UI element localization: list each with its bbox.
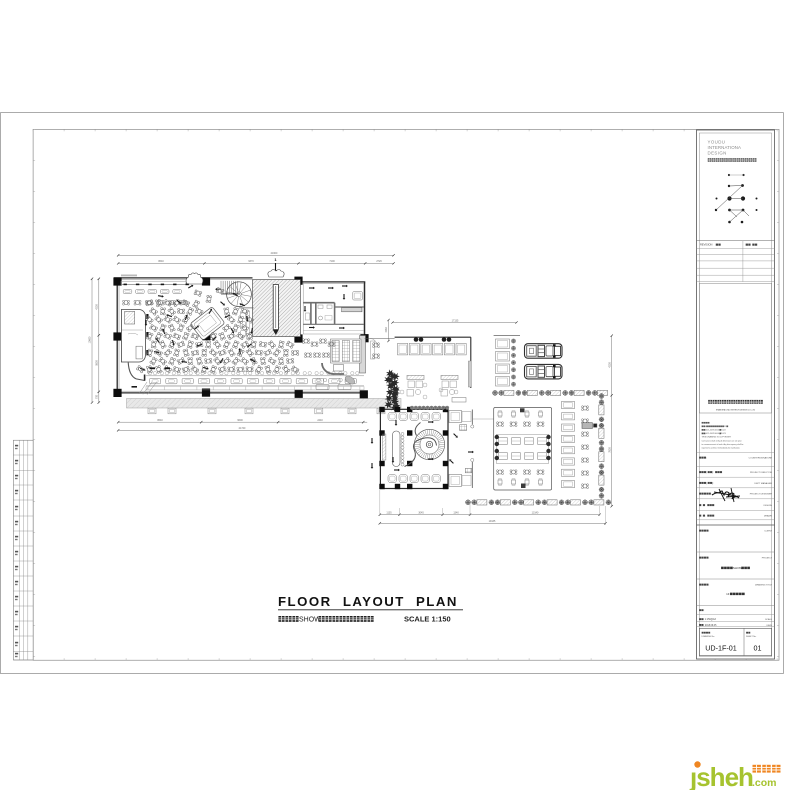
svg-text:5800: 5800 [95, 360, 98, 366]
svg-text:4200: 4200 [608, 362, 611, 368]
svg-text:8640: 8640 [158, 260, 164, 263]
svg-text:SCALE: SCALE [765, 618, 772, 621]
svg-text:SHEET No.: SHEET No. [746, 636, 757, 638]
svg-text::021-54851000: :021-54851000 [706, 430, 720, 432]
svg-text:7100: 7100 [329, 260, 335, 263]
svg-text:UD-1F-01: UD-1F-01 [705, 644, 737, 653]
svg-text:REVISION: REVISION [700, 243, 713, 247]
svg-text:01: 01 [754, 644, 762, 653]
svg-text:21740: 21740 [239, 427, 246, 430]
svg-text:DESIGN: DESIGN [764, 505, 773, 507]
svg-text:Contractors shall verify all d: Contractors shall verify all dimensions … [702, 439, 742, 442]
svg-text:PROJECT DESIGNER: PROJECT DESIGNER [750, 494, 773, 496]
svg-text:2726: 2726 [376, 260, 382, 263]
svg-text:FLOOR LAYOUT PLAN: FLOOR LAYOUT PLAN [278, 594, 458, 609]
svg-text:1135: 1135 [386, 511, 392, 514]
svg-text:SHOW: SHOW [733, 566, 743, 570]
svg-text:PROJECT: PROJECT [762, 558, 773, 560]
svg-text:21600: 21600 [271, 252, 278, 255]
svg-text:DRAWING TITLE: DRAWING TITLE [755, 584, 773, 587]
svg-text:DESIGN: DESIGN [708, 151, 727, 156]
svg-text:8640: 8640 [157, 419, 163, 422]
svg-text:: 1:150@A3: : 1:150@A3 [704, 618, 717, 621]
svg-text:17135: 17135 [452, 319, 459, 322]
svg-text:CLIENT: CLIENT [764, 531, 772, 533]
svg-text:to commencement of work. Any d: to commencement of work. Any discrepancy… [702, 443, 744, 446]
svg-text:700: 700 [95, 394, 98, 399]
svg-text:13140: 13140 [532, 511, 539, 514]
svg-text:SHANGHAI LND INTERIOR DESIGN C: SHANGHAI LND INTERIOR DESIGN CO.,LTD [716, 409, 756, 412]
svg-text:.com: .com [752, 777, 777, 789]
svg-text:THIS DRAWING IS COPYRIGHT: THIS DRAWING IS COPYRIGHT [702, 436, 732, 439]
svg-text:3045: 3045 [418, 511, 424, 514]
svg-text:9370: 9370 [248, 260, 254, 263]
svg-text:DATE: DATE [767, 624, 773, 627]
svg-text:SHOW: SHOW [299, 617, 321, 624]
svg-text:9600: 9600 [237, 419, 243, 422]
svg-text:DEPT MANAGER: DEPT MANAGER [755, 482, 773, 485]
svg-text:19135: 19135 [489, 520, 496, 523]
svg-text:10600: 10600 [89, 336, 92, 343]
svg-text:DRAWN: DRAWN [764, 515, 773, 518]
svg-text:INTERNATIONA: INTERNATIONA [708, 145, 742, 150]
svg-text:SCALE 1:150: SCALE 1:150 [404, 615, 451, 624]
svg-text:reported to architect immediat: reported to architect immediately for cl… [702, 446, 741, 449]
svg-text::021-54851000: :021-54851000 [706, 433, 720, 435]
svg-text:1340: 1340 [453, 511, 459, 514]
svg-text:DRAWING No.: DRAWING No. [702, 635, 716, 638]
svg-text:1560: 1560 [385, 327, 388, 333]
svg-text:PROJECT DIRECTOR: PROJECT DIRECTOR [750, 472, 773, 474]
svg-text:YOUDU: YOUDU [708, 140, 726, 145]
svg-text:COUNTERSIGNATURE: COUNTERSIGNATURE [749, 457, 773, 460]
svg-text:7800: 7800 [608, 447, 611, 453]
svg-text:2440: 2440 [317, 419, 323, 422]
svg-text:4200: 4200 [95, 304, 98, 310]
svg-text:1F: 1F [726, 592, 730, 596]
